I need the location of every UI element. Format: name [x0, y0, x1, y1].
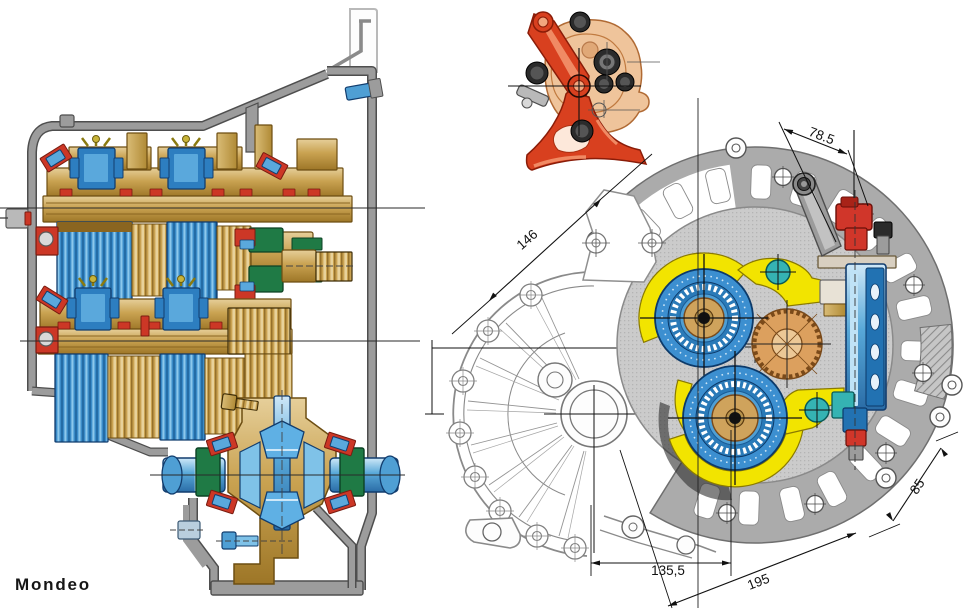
svg-text:85: 85 [907, 476, 928, 497]
svg-text:146: 146 [514, 227, 541, 253]
svg-text:135,5: 135,5 [651, 563, 685, 578]
svg-text:Mondeo: Mondeo [15, 575, 91, 594]
